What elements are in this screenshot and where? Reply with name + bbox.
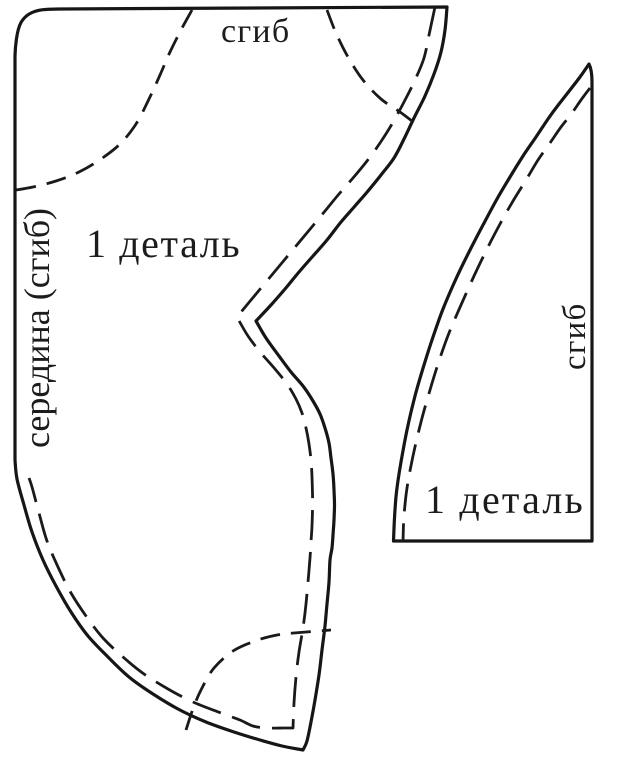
svg-text:1 деталь: 1 деталь — [425, 477, 585, 522]
svg-text:середина (сгиб): середина (сгиб) — [17, 208, 57, 448]
svg-text:1 деталь: 1 деталь — [86, 221, 241, 266]
svg-text:сгиб: сгиб — [221, 13, 290, 50]
svg-text:сгиб: сгиб — [557, 303, 593, 370]
